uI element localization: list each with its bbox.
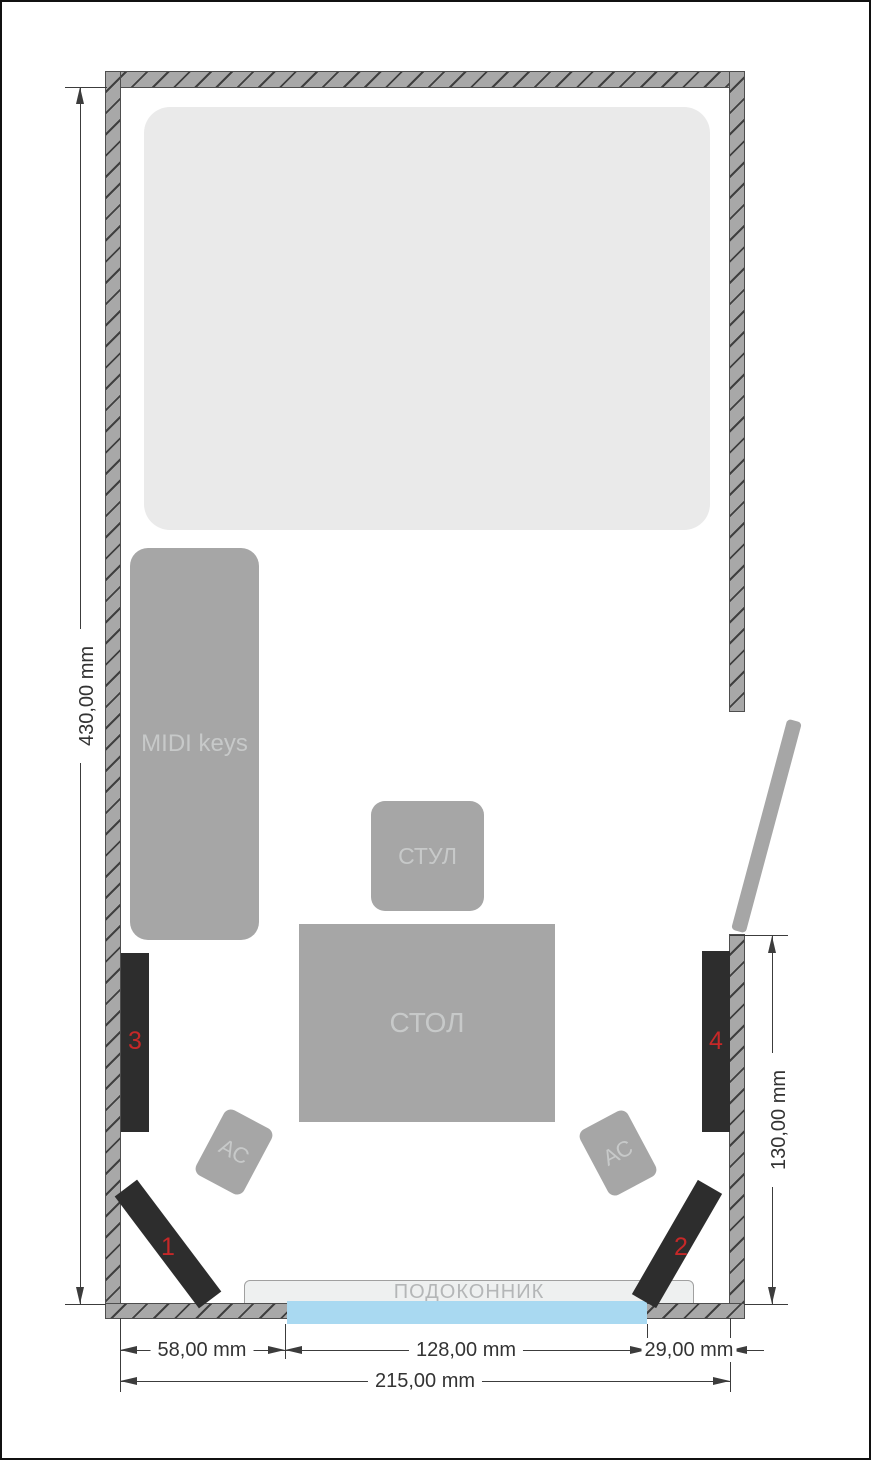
- dimension-arrow: [120, 1346, 137, 1354]
- wall-right-lower: [730, 935, 744, 1318]
- dimension-arrow: [76, 1287, 84, 1304]
- desk-label: СТОЛ: [390, 1007, 465, 1039]
- dimension-room-width: 215,00 mm: [368, 1369, 482, 1393]
- extension-line: [744, 1304, 788, 1305]
- dimension-arrow: [285, 1346, 302, 1354]
- midi-keyboard-label: MIDI keys: [141, 730, 248, 758]
- dimension-arrow: [120, 1377, 137, 1385]
- desk: СТОЛ: [299, 924, 555, 1122]
- chair: СТУЛ: [371, 801, 484, 911]
- window: [287, 1301, 647, 1324]
- dimension-window-wall-height: 130,00 mm: [767, 1053, 791, 1187]
- dimension-window-to-wall: 29,00 mm: [642, 1338, 737, 1362]
- speaker-left: АС: [193, 1107, 275, 1198]
- door-leaf: [731, 719, 802, 933]
- panel-number-1: 1: [154, 1233, 182, 1261]
- extension-line: [730, 935, 788, 936]
- extension-line: [65, 87, 107, 88]
- dimension-arrow: [768, 1287, 776, 1304]
- speaker-left-label: АС: [215, 1133, 254, 1170]
- panel-number-3: 3: [121, 1027, 149, 1055]
- wall-top: [106, 72, 744, 87]
- extension-line: [65, 1304, 106, 1305]
- speaker-right: АС: [577, 1108, 659, 1199]
- panel-number-2: 2: [667, 1233, 695, 1261]
- speaker-right-label: АС: [599, 1134, 638, 1171]
- wall-left: [106, 72, 120, 1318]
- midi-keyboard: MIDI keys: [130, 548, 259, 940]
- dimension-arrow: [768, 936, 776, 953]
- bed: [144, 107, 710, 530]
- dimension-arrow: [76, 87, 84, 104]
- panel-number-4: 4: [702, 1027, 730, 1055]
- dimension-arrow: [268, 1346, 285, 1354]
- dimension-room-height: 430,00 mm: [75, 629, 99, 763]
- chair-label: СТУЛ: [398, 843, 457, 870]
- wall-right-upper: [730, 72, 744, 711]
- dimension-window-width: 128,00 mm: [409, 1338, 523, 1362]
- dimension-arrow: [713, 1377, 730, 1385]
- dimension-wall-to-window: 58,00 mm: [151, 1338, 254, 1362]
- floor-plan: MIDI keys СТУЛ СТОЛ АС АС ПОДОКОННИК 1 2…: [0, 0, 871, 1460]
